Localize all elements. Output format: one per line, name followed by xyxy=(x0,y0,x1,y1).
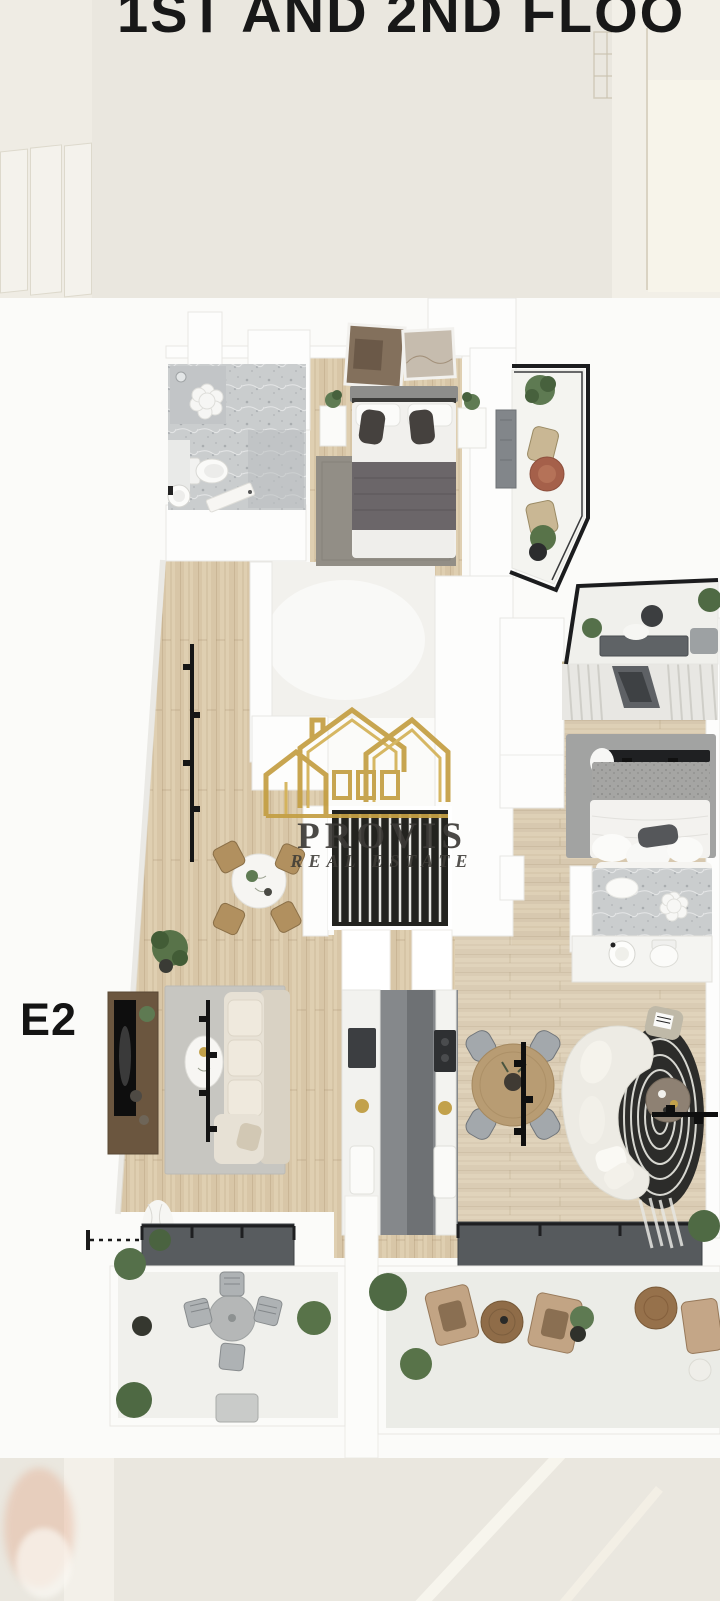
second-bathroom xyxy=(570,866,712,982)
watermark-brand: PROVIS xyxy=(262,818,502,855)
sofa-cushion xyxy=(579,1096,605,1144)
decor-plant xyxy=(139,1006,155,1022)
lounge-chair xyxy=(690,628,718,654)
faint-road-line xyxy=(534,1486,663,1601)
unit-label: E2 xyxy=(20,997,77,1042)
potted-plant xyxy=(570,1306,594,1330)
faint-car-body xyxy=(16,1528,72,1598)
gold-dish xyxy=(438,1101,452,1115)
outdoor-coffee-table xyxy=(635,1287,677,1329)
pillow xyxy=(592,834,632,862)
terrace-right xyxy=(369,1266,720,1434)
second-bedroom xyxy=(562,661,718,892)
throw-blanket xyxy=(352,462,456,530)
counter-top-cap xyxy=(342,930,390,992)
floor-plan-image xyxy=(0,298,720,1458)
watermark-tagline: REAL ESTATE xyxy=(262,852,502,870)
faint-glass-panel xyxy=(64,143,92,298)
towel xyxy=(623,624,649,640)
potted-plant xyxy=(582,618,602,638)
terracotta-table xyxy=(530,457,564,491)
appliance xyxy=(348,1028,376,1068)
lounge-chair xyxy=(216,1394,258,1422)
vanity-counter xyxy=(572,936,712,982)
accent-chair xyxy=(408,409,435,445)
wall-artworks xyxy=(345,324,455,388)
sink2 xyxy=(609,941,635,967)
tv-console xyxy=(108,992,158,1154)
toilet xyxy=(188,458,228,484)
planter-box-left xyxy=(142,1224,294,1272)
kitchen xyxy=(330,808,458,1235)
faint-building-wall xyxy=(648,80,720,292)
background-top-band xyxy=(0,0,720,300)
sink xyxy=(168,440,190,507)
potted-plant xyxy=(297,1301,331,1335)
flyer-page: 1ST AND 2ND FLOO E2 PROVIS REAL ESTATE xyxy=(0,0,720,1601)
kitchen-aisle xyxy=(407,990,433,1235)
potted-plant xyxy=(114,1248,146,1280)
terrace-left xyxy=(110,1248,345,1426)
kitchen-sink xyxy=(350,1146,374,1194)
ac-unit xyxy=(496,410,516,488)
potted-plant xyxy=(400,1348,432,1380)
balcony-table xyxy=(641,605,663,627)
potted-plant xyxy=(688,1210,720,1242)
counter-top-cap xyxy=(412,930,452,990)
background-bottom-band xyxy=(0,1458,720,1601)
pouf xyxy=(689,1359,711,1381)
plant-pot xyxy=(570,1326,586,1342)
wooden-armchair xyxy=(681,1298,720,1355)
faint-road-line xyxy=(410,1458,569,1601)
kitchen-sink xyxy=(434,1146,456,1198)
page-title: 1ST AND 2ND FLOO xyxy=(117,0,685,41)
bathroom xyxy=(168,364,306,512)
table-plant xyxy=(246,870,258,882)
gold-dish xyxy=(355,1099,369,1113)
outdoor-coffee-table xyxy=(481,1301,523,1343)
towel xyxy=(606,878,638,898)
shower-head-icon xyxy=(176,372,186,382)
potted-plant xyxy=(116,1382,152,1418)
potted-plant xyxy=(369,1273,407,1311)
centerpiece xyxy=(504,1073,522,1091)
sofa xyxy=(214,990,290,1164)
terrace-divider-wall xyxy=(345,1196,378,1458)
toilet2 xyxy=(650,940,678,967)
bathroom2-floor xyxy=(590,868,712,942)
balcony-bench xyxy=(600,636,688,656)
coffee-table xyxy=(185,1036,223,1088)
kitchen-counter-right xyxy=(433,990,458,1235)
plant-pot xyxy=(132,1316,152,1336)
faint-glass-panel xyxy=(0,149,28,294)
cooktop xyxy=(434,1030,456,1072)
second-balcony xyxy=(566,580,720,664)
empty-room xyxy=(252,562,435,718)
bed xyxy=(350,386,458,558)
faint-glass-panel xyxy=(30,144,62,295)
